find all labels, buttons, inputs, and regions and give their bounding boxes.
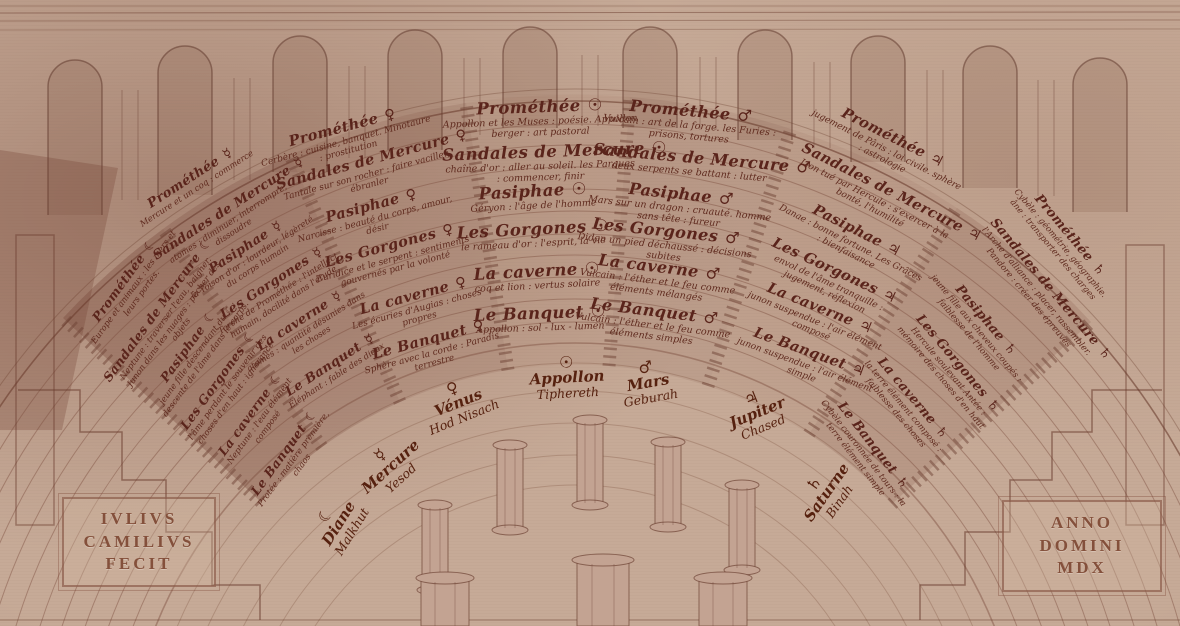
gate-appollon: ☉ Appollon Tiphereth [528, 353, 605, 402]
mars-symbol-icon: ♂ [737, 105, 753, 125]
plaque-line: ANNO [1051, 512, 1113, 535]
venus-symbol-icon: ♀ [383, 106, 398, 124]
gate-mars: ♂ Mars Geburah [617, 355, 679, 409]
memory-theatre-drawing: Prométhée☾ Europe et animaux : les mers … [0, 0, 1180, 626]
plaque-date: ANNO DOMINI MDX [1002, 500, 1162, 592]
mars-symbol-icon: ♂ [704, 263, 721, 284]
plaque-maker: IVLIVS CAMILIVS FECIT [62, 497, 216, 587]
cornice [0, 6, 1180, 30]
mars-symbol-icon: ♂ [702, 307, 719, 328]
plaque-line: DOMINI [1039, 535, 1124, 558]
plaque-line: FECIT [106, 553, 173, 576]
plaque-line: CAMILIVS [84, 531, 195, 554]
mars-symbol-icon: ♂ [724, 228, 741, 248]
gate-sephira-name: Tiphereth [530, 384, 606, 401]
plaque-line: IVLIVS [101, 508, 178, 531]
plaque-line: MDX [1057, 557, 1107, 580]
orchestra-columns [416, 415, 760, 626]
mars-symbol-icon: ♂ [718, 188, 735, 208]
venus-symbol-icon: ♀ [404, 186, 419, 204]
sun-symbol-icon: ☉ [571, 179, 587, 199]
